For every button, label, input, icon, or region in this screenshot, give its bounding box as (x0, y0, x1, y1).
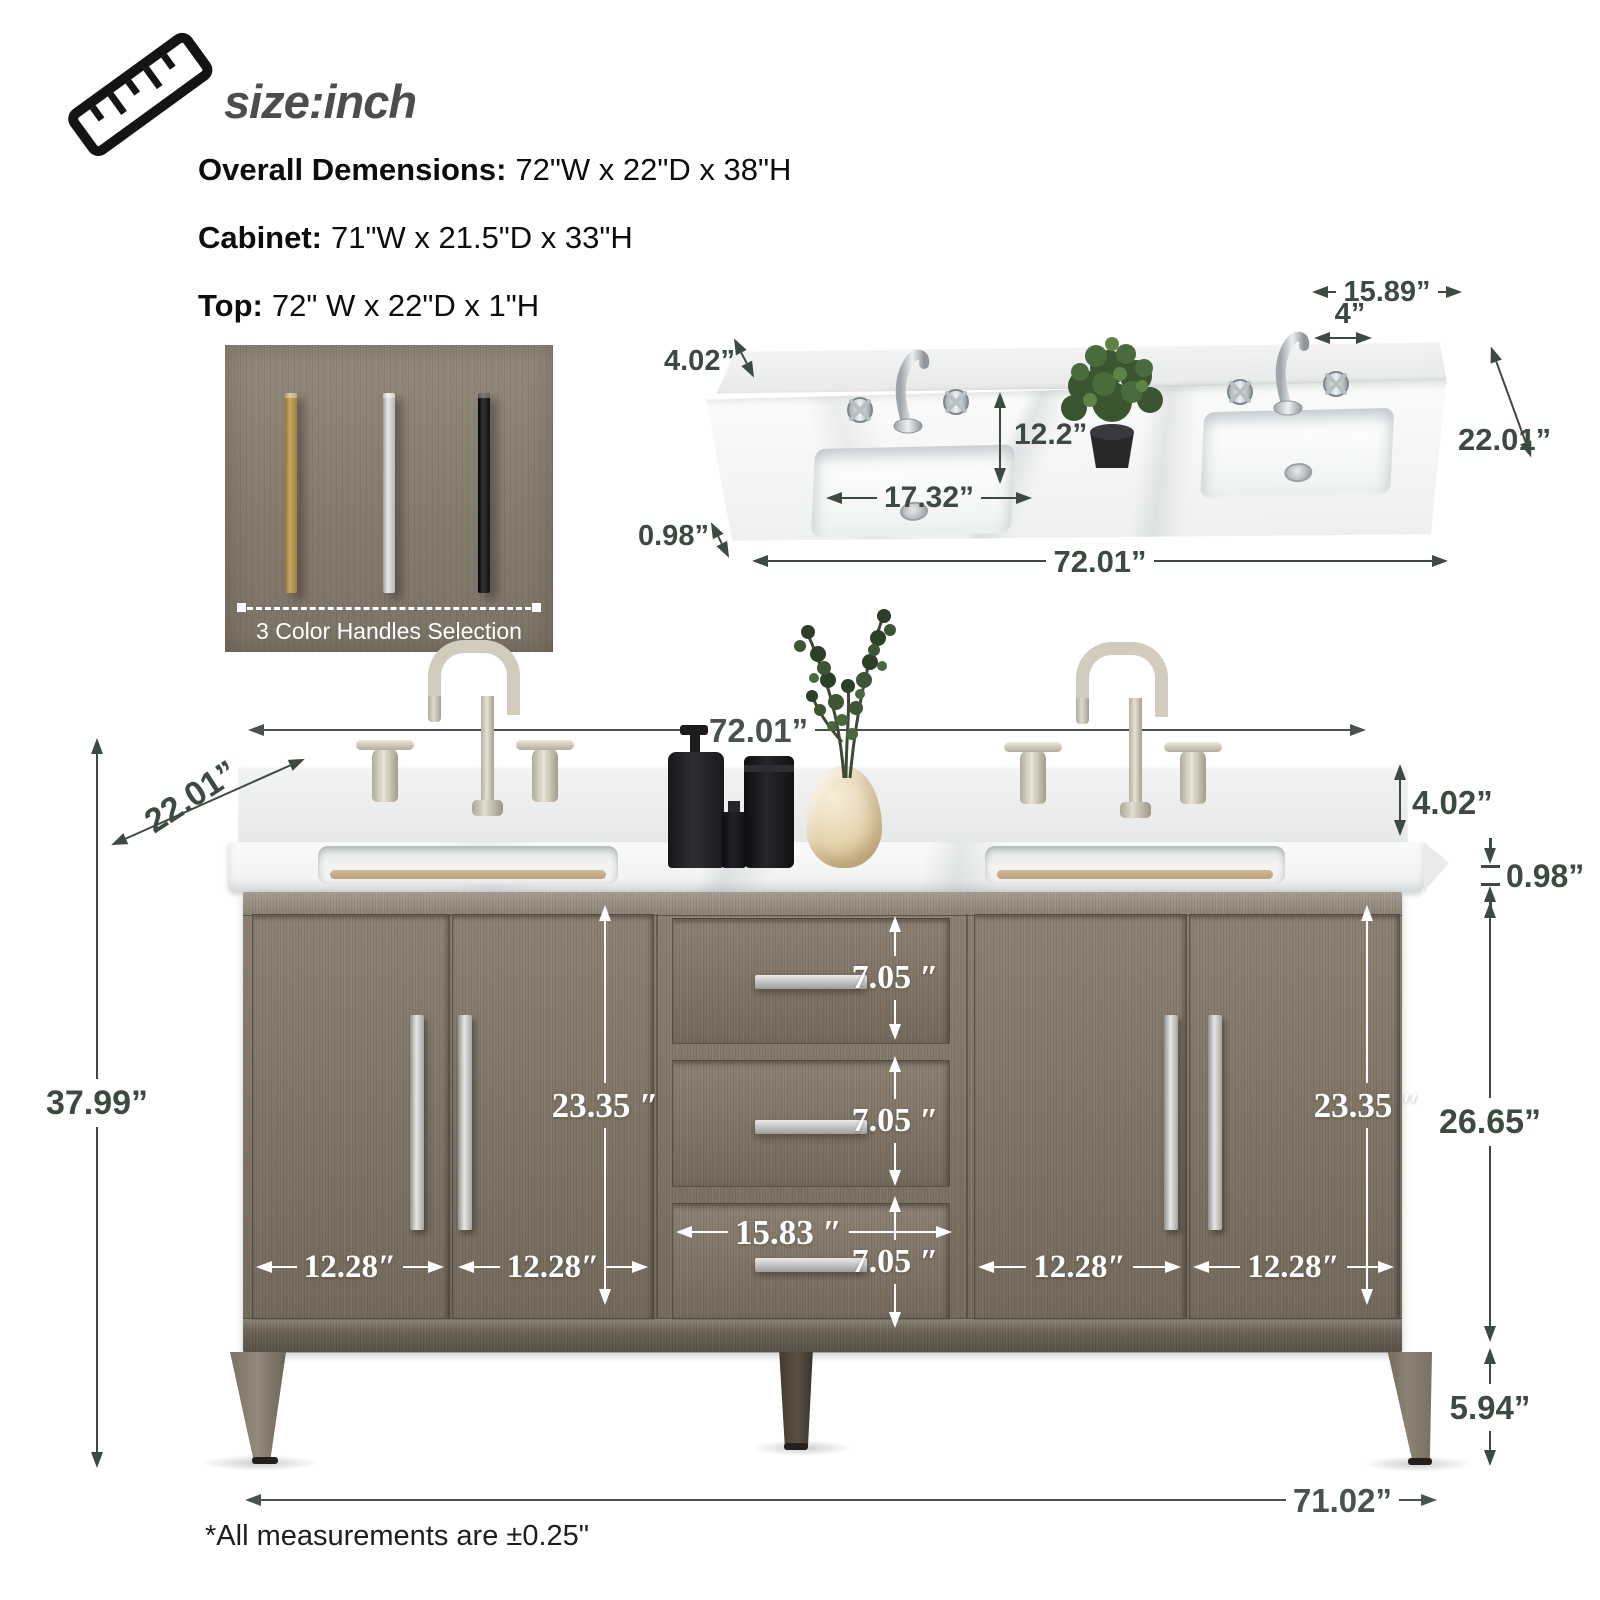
handle-color-selection-box: 3 Color Handles Selection (225, 345, 553, 652)
dim-left-door-height: 23.35 ″ (583, 905, 627, 1305)
spec-top: Top:72" W x 22"D x 1"H (198, 288, 539, 324)
potted-plant-top-view (1046, 316, 1178, 486)
vanity-dimension-diagram: size:inch Overall Demensions:72"W x 22"D… (0, 0, 1600, 1600)
dim-door1-width: 12.28″ (256, 1251, 444, 1283)
black-handle-option (478, 393, 490, 593)
countertop-right-edge (1424, 842, 1449, 892)
left-sink-front-view (318, 846, 618, 884)
left-leg (230, 1352, 286, 1460)
spec-overall: Overall Demensions:72"W x 22"D x 38"H (198, 152, 791, 188)
dim-door4-width: 12.28″ (1193, 1251, 1394, 1283)
left-faucet-top-view (838, 338, 978, 434)
right-sink-front-view (985, 846, 1285, 884)
dim-faucet-hole-spacing-arrow (1314, 322, 1372, 354)
eucalyptus-plant (766, 592, 934, 782)
dim-sink-width: 17.32” (826, 482, 1032, 514)
dim-fv-thickness: 0.98” (1470, 838, 1590, 908)
soap-pump-bottle (668, 752, 724, 868)
small-bottle (722, 812, 746, 868)
faucet-handle (532, 748, 558, 802)
door-3-handle (1164, 1015, 1178, 1230)
measurement-tolerance-note: *All measurements are ±0.25" (205, 1520, 589, 1553)
door-2-handle (458, 1015, 472, 1230)
spec-top-value: 72" W x 22"D x 1"H (272, 288, 539, 323)
dim-tv-total-width: 72.01” (752, 545, 1448, 577)
door-4-handle (1208, 1015, 1222, 1230)
dim-sink-depth-label: 12.2” (1014, 420, 1087, 450)
left-faucet (320, 640, 620, 818)
dim-door2-width: 12.28″ (458, 1251, 648, 1283)
dim-leg-height: 5.94” (1468, 1348, 1512, 1466)
drawer-2-handle (755, 1120, 867, 1134)
dim-drawer1-height: 7.05 ″ (873, 916, 917, 1040)
faucet-handle (1020, 750, 1046, 804)
cabinet-top-rail (243, 892, 1402, 916)
dim-drawer2-height: 7.05 ″ (873, 1056, 917, 1186)
spec-overall-label: Overall Demensions: (198, 152, 506, 187)
drawer-3-handle (755, 1258, 867, 1272)
dim-fv-backsplash-label: 4.02” (1412, 786, 1493, 819)
silver-handle-option (383, 393, 395, 593)
cabinet-bottom-rail (243, 1318, 1402, 1353)
drawer-1-handle (755, 975, 867, 989)
middle-leg (776, 1352, 816, 1446)
faucet-spout-arc (1076, 642, 1168, 717)
dim-cabinet-height: 26.65” (1468, 902, 1512, 1342)
door-1-handle (410, 1015, 424, 1230)
faucet-handle (372, 748, 398, 802)
dim-tv-depth-label: 22.01” (1458, 424, 1551, 455)
spec-cabinet-value: 71"W x 21.5"D x 33"H (331, 220, 633, 255)
dim-drawer-width: 15.83 ″ (676, 1216, 952, 1248)
spec-overall-value: 72"W x 22"D x 38"H (515, 152, 791, 187)
spec-cabinet-label: Cabinet: (198, 220, 322, 255)
faucet-handle (1180, 750, 1206, 804)
dim-right-door-height: 23.35 ″ (1345, 905, 1389, 1305)
dim-total-height: 37.99” (75, 738, 119, 1468)
dashed-divider (247, 607, 531, 610)
dim-door3-width: 12.28″ (978, 1251, 1181, 1283)
ruler-icon (52, 26, 227, 161)
dim-base-width: 71.02” (245, 1484, 1437, 1516)
right-drain (1284, 463, 1313, 483)
page-title: size:inch (224, 74, 416, 129)
right-leg (1378, 1352, 1432, 1462)
spec-top-label: Top: (198, 288, 263, 323)
dim-tv-thickness-label: 0.98” (638, 522, 709, 551)
spec-cabinet: Cabinet:71"W x 21.5"D x 33"H (198, 220, 633, 256)
right-sink-top-view (1200, 408, 1394, 498)
faucet-spout-arc (428, 640, 520, 715)
gold-handle-option (285, 393, 297, 593)
right-faucet (968, 642, 1268, 820)
